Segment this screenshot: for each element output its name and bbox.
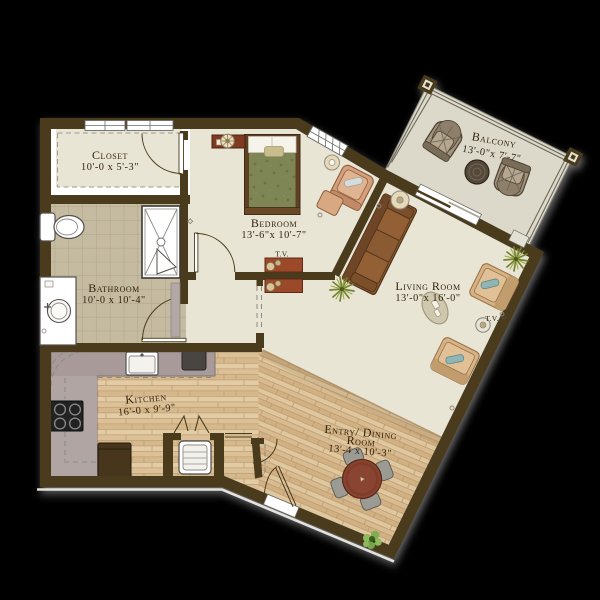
svg-text:T.V.: T.V. xyxy=(485,314,498,323)
svg-text:13'-0"x 16'-0": 13'-0"x 16'-0" xyxy=(395,293,460,304)
svg-text:T.V.: T.V. xyxy=(275,250,288,259)
svg-text:Living Room: Living Room xyxy=(395,279,460,293)
svg-text:10'-0 x 5'-3": 10'-0 x 5'-3" xyxy=(81,162,139,173)
svg-text:Closet: Closet xyxy=(92,148,128,162)
svg-text:10'-0 x 10'-4": 10'-0 x 10'-4" xyxy=(82,295,146,306)
svg-text:13'-6"x 10'-7": 13'-6"x 10'-7" xyxy=(241,230,306,241)
svg-text:Bathroom: Bathroom xyxy=(88,281,140,295)
svg-text:Bedroom: Bedroom xyxy=(251,216,297,230)
